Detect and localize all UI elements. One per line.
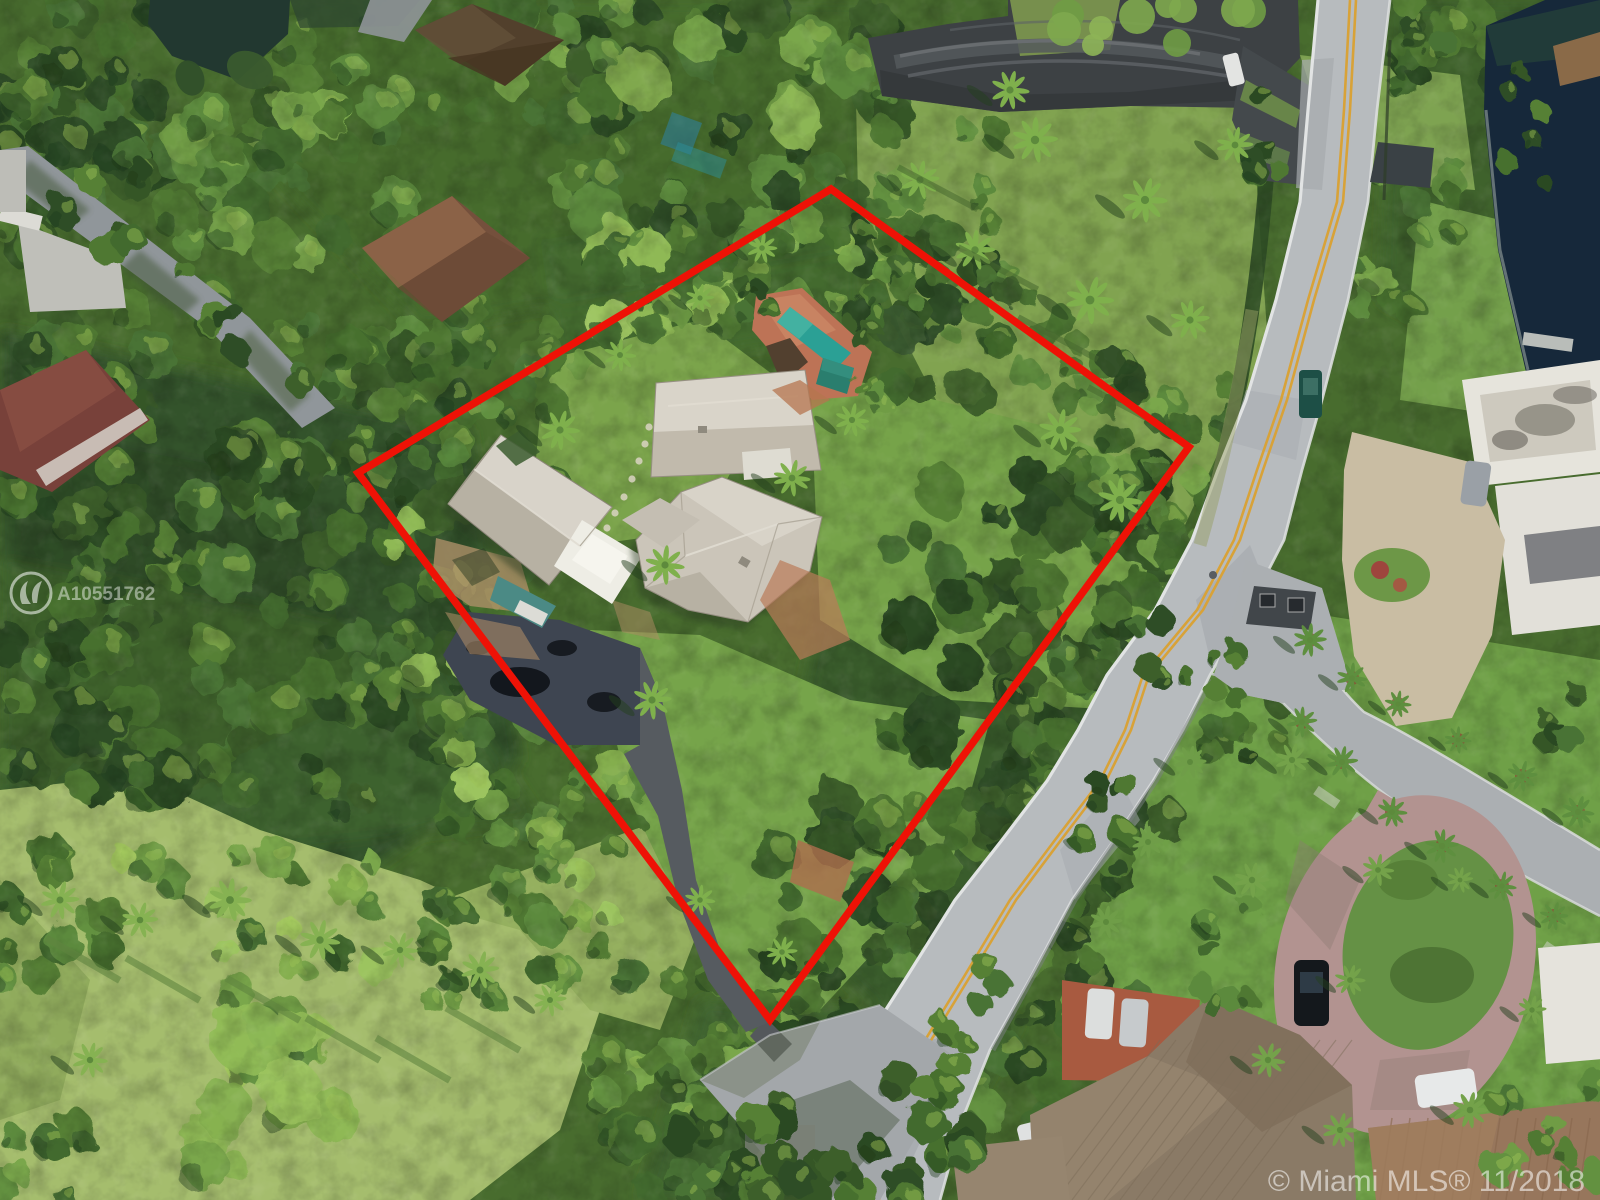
svg-text:A10551762: A10551762 [57,584,155,605]
svg-text:© Miami MLS® 11/2018: © Miami MLS® 11/2018 [1268,1165,1585,1198]
